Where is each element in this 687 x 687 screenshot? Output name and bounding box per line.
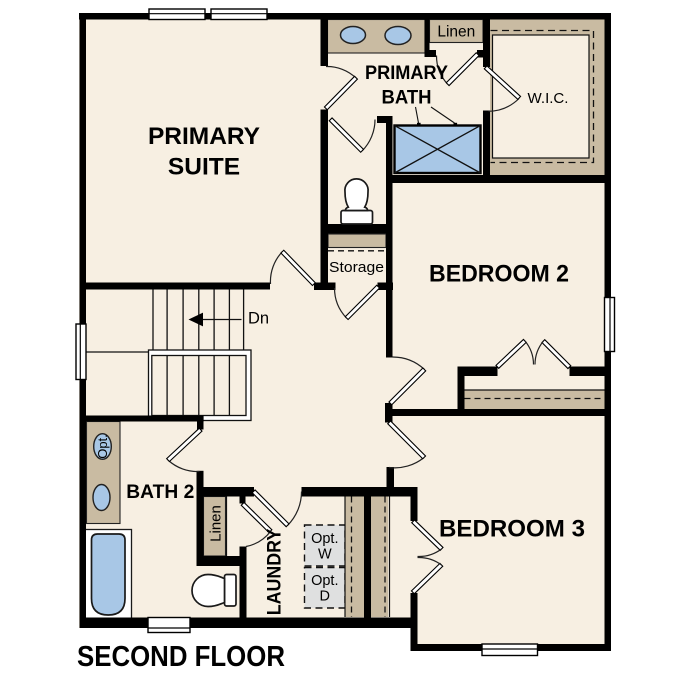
svg-text:Linen: Linen [437,24,475,41]
svg-text:PRIMARY: PRIMARY [148,123,260,150]
svg-text:Opt.: Opt. [95,434,110,459]
svg-text:SECOND FLOOR: SECOND FLOOR [77,641,285,673]
svg-text:W.I.C.: W.I.C. [528,90,569,107]
svg-text:BEDROOM 2: BEDROOM 2 [429,261,569,288]
svg-text:PRIMARY: PRIMARY [365,63,448,84]
svg-text:D: D [320,588,330,604]
svg-text:Storage: Storage [329,260,384,276]
svg-text:BEDROOM 3: BEDROOM 3 [439,516,585,543]
svg-text:LAUNDRY: LAUNDRY [265,528,286,615]
svg-text:BATH 2: BATH 2 [126,482,194,503]
svg-text:Linen: Linen [208,505,225,542]
svg-text:W: W [318,547,332,563]
svg-text:Opt.: Opt. [311,531,338,547]
svg-text:SUITE: SUITE [168,154,240,181]
svg-text:Opt.: Opt. [311,573,338,589]
svg-text:BATH: BATH [382,88,432,109]
svg-text:Dn: Dn [248,310,269,328]
